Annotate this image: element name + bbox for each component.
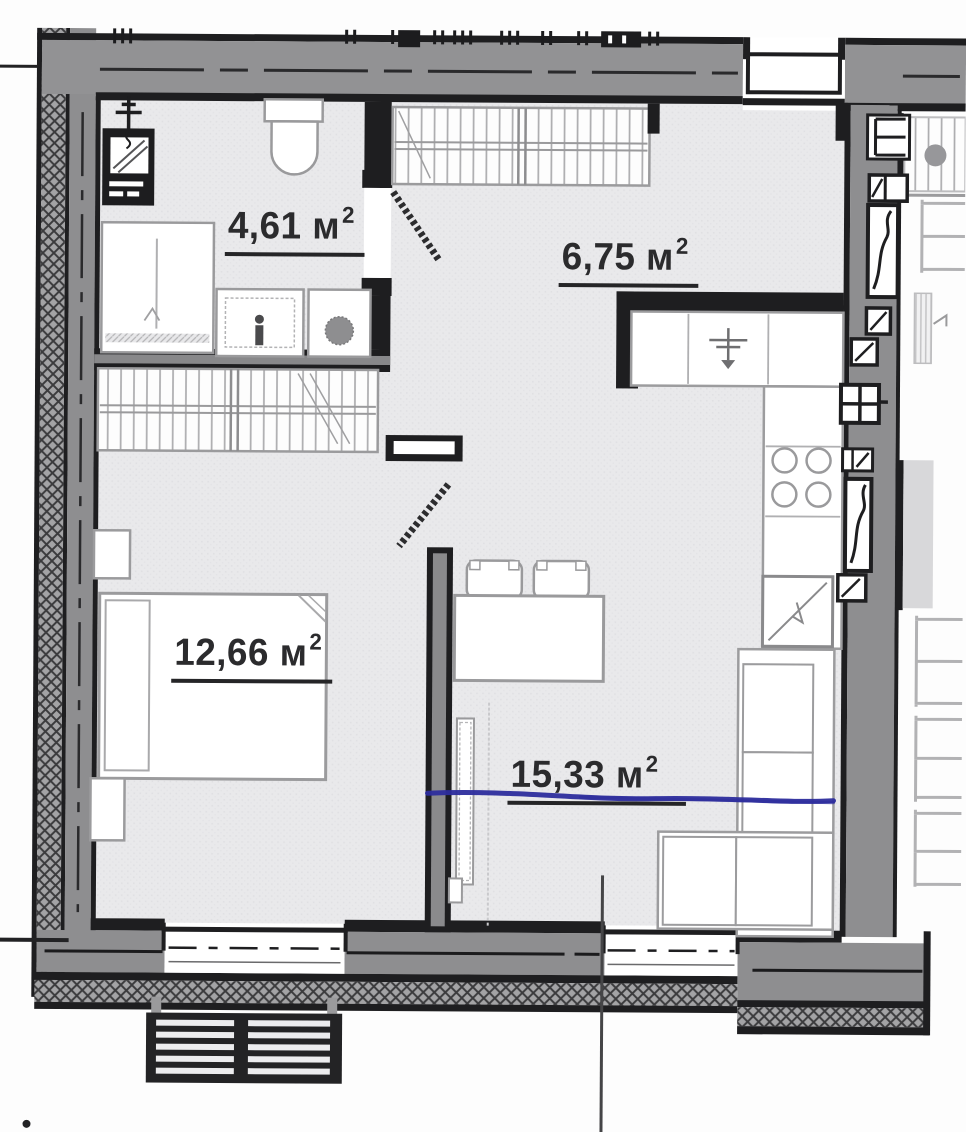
scan-mark: [22, 1120, 30, 1128]
shaft-box-icon: [851, 339, 877, 365]
oven: [762, 576, 832, 646]
shaft-box-icon: [843, 449, 873, 471]
nightstand: [94, 530, 130, 578]
area-superscript: 2: [676, 233, 689, 259]
pipe-column: [924, 144, 946, 166]
faucet-icon: [255, 315, 264, 324]
shaft-box-icon: [838, 575, 866, 601]
area-superscript: 2: [646, 751, 659, 777]
room-area-label-bedroom: 12,66 м2: [171, 630, 332, 684]
bathroom-sink: [216, 289, 303, 357]
room-area-label-bathroom: 4,61 м2: [225, 203, 365, 257]
shaft-box-icon: [866, 308, 890, 334]
area-superscript: 2: [342, 202, 355, 228]
drain-icon: [325, 317, 353, 345]
plan-canvas: 4,61 м2 6,75 м2 12,66 м2 15,33 м2: [0, 0, 966, 1132]
dimension-line-top-left: [0, 65, 38, 68]
area-value: 4,61 м: [228, 205, 340, 248]
bedroom-window: [161, 923, 347, 974]
area-value: 15,33 м: [510, 754, 643, 797]
entrance-door-leaf: [748, 54, 840, 93]
pillow: [105, 600, 150, 770]
dimension-line-bottom-left: [0, 938, 69, 942]
left-exterior-wall: [31, 28, 101, 997]
nightstand: [90, 778, 124, 840]
bathroom-cabinet: [308, 290, 370, 357]
area-value: 12,66 м: [174, 632, 307, 675]
dining-table: [454, 595, 604, 681]
room-area-label-living-kitchen: 15,33 м2: [507, 752, 685, 806]
area-superscript: 2: [309, 629, 322, 655]
shaft-box-icon: [869, 175, 907, 201]
bedroom-wardrobe: [98, 368, 378, 452]
double-bed: [99, 593, 327, 779]
vent-shaft-icon: [867, 115, 909, 159]
hallway-wardrobe: [392, 102, 659, 186]
neighbor-door-leaf: [914, 293, 931, 363]
floor-plan-drawing: [0, 0, 966, 1132]
neighbor-unit-fixtures: [894, 113, 966, 885]
room-area-label-hallway: 6,75 м2: [559, 234, 699, 288]
duct-shaft-icon: [868, 205, 899, 297]
area-value: 6,75 м: [562, 236, 674, 279]
duct-shaft-icon: [845, 479, 872, 571]
living-window: [601, 925, 740, 976]
neighbor-shelving: [915, 617, 963, 885]
floor-plan-scan: 4,61 м2 6,75 м2 12,66 м2 15,33 м2: [0, 0, 966, 1132]
neighbor-counter: [922, 201, 965, 271]
shower-tray: [101, 222, 214, 353]
